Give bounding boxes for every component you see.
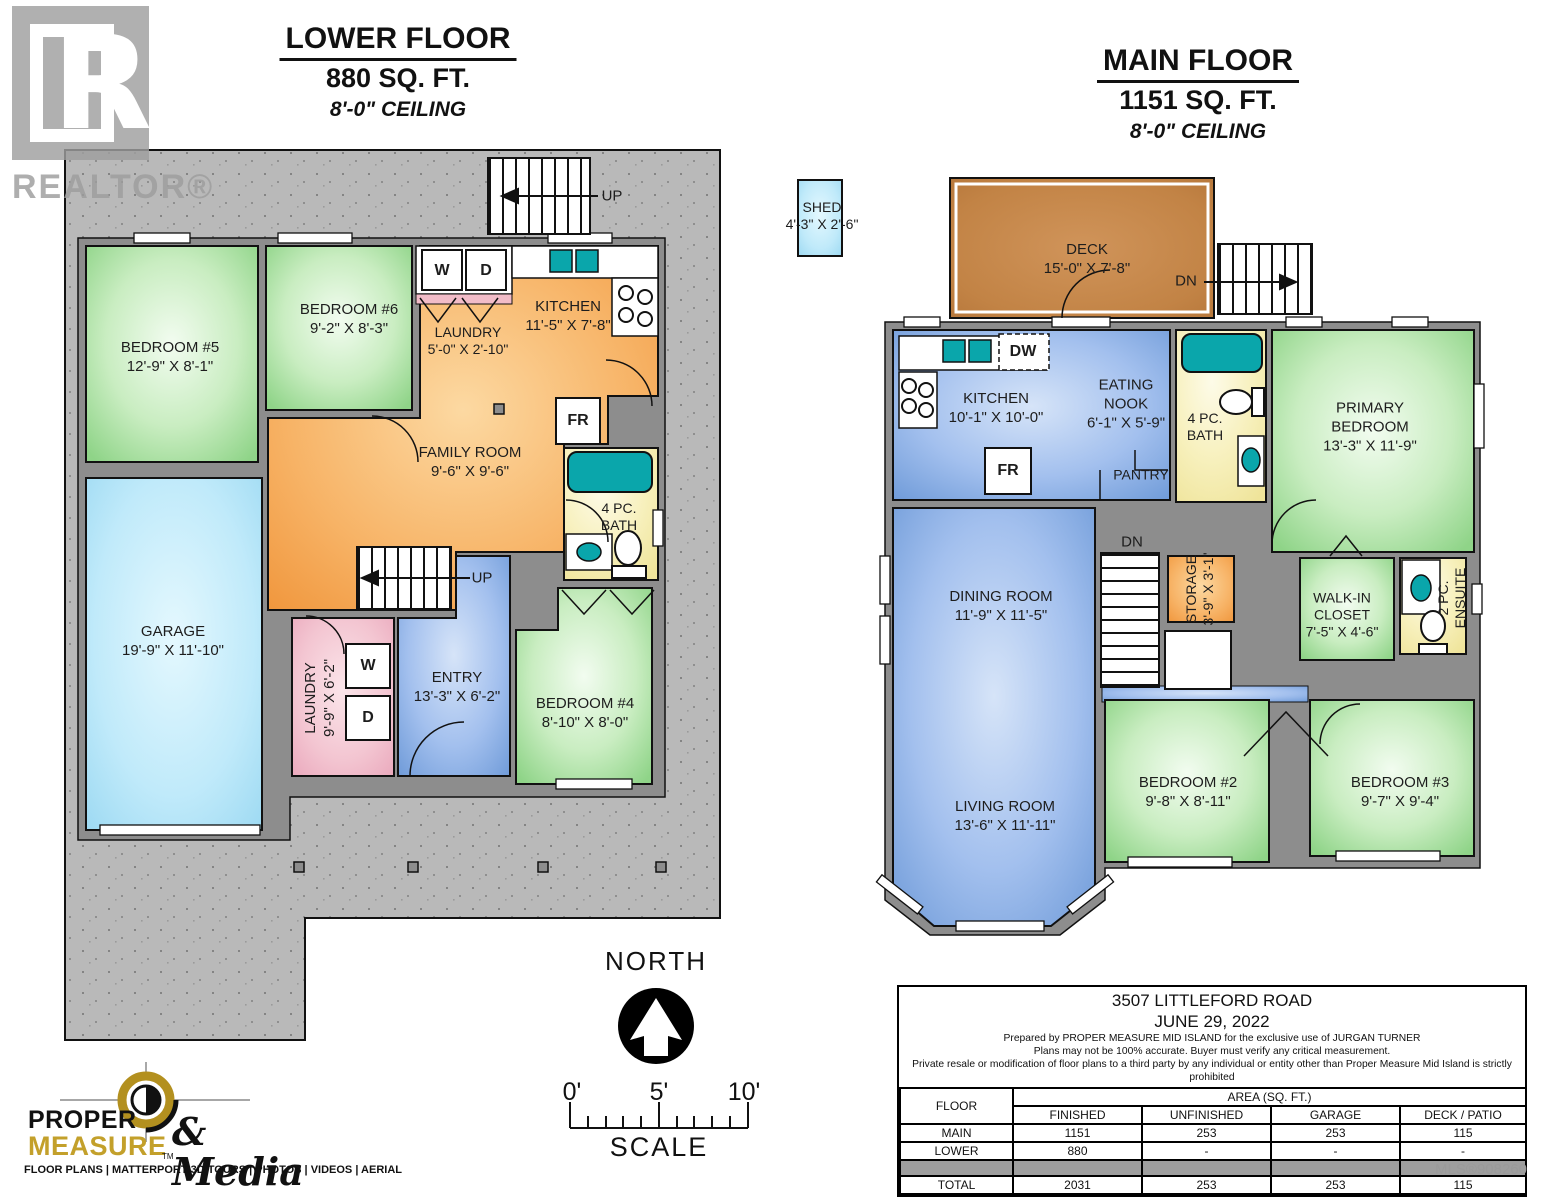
scale-label: SCALE bbox=[610, 1132, 709, 1163]
stair-landing bbox=[1164, 630, 1232, 690]
label-entry: ENTRY13'-3" X 6'-2" bbox=[414, 668, 500, 706]
toilet-lower bbox=[615, 531, 641, 565]
label-eating-nook: EATINGNOOK6'-1" X 5'-9" bbox=[1087, 376, 1165, 433]
sink-bath-main bbox=[1242, 448, 1260, 472]
sink-bath-lower bbox=[577, 543, 601, 561]
area-table: FLOOR AREA (SQ. FT.) FINISHED UNFINISHED… bbox=[899, 1087, 1527, 1195]
sink-main-1 bbox=[943, 340, 965, 362]
label-bedroom5: BEDROOM #512'-9" X 8'-1" bbox=[121, 338, 219, 376]
label-primary-bedroom: PRIMARYBEDROOM13'-3" X 11'-9" bbox=[1323, 399, 1417, 456]
tub-main bbox=[1182, 334, 1262, 372]
sink-main-2 bbox=[969, 340, 991, 362]
date: JUNE 29, 2022 bbox=[899, 1011, 1525, 1032]
sink-ensuite bbox=[1411, 575, 1431, 601]
label-washer-lower: W bbox=[360, 657, 375, 675]
label-deck: DECK15'-0" X 7'-8" bbox=[1044, 240, 1130, 278]
label-laundry-upper: LAUNDRY5'-0" X 2'-10" bbox=[428, 324, 509, 358]
floor-title: LOWER FLOOR bbox=[280, 22, 517, 61]
address: 3507 LITTLEFORD ROAD bbox=[899, 987, 1525, 1011]
table-row-total: TOTAL 2031 253 253 115 bbox=[900, 1176, 1526, 1194]
north-compass-icon bbox=[618, 988, 694, 1064]
label-shed: SHED4'-3" X 2'-6" bbox=[786, 199, 859, 233]
stairs-interior-up bbox=[356, 546, 452, 610]
col-garage: GARAGE bbox=[1271, 1106, 1400, 1124]
stairs-deck-down bbox=[1217, 243, 1313, 315]
floor-plan-page: LOWER FLOOR 880 SQ. FT. 8'-0" CEILING MA… bbox=[0, 0, 1553, 1200]
label-kitchen-main: KITCHEN10'-1" X 10'-0" bbox=[949, 389, 1044, 427]
north-label: NORTH bbox=[605, 946, 707, 977]
label-bath-lower: 4 PC.BATH bbox=[601, 500, 637, 534]
floor-ceiling: 8'-0" CEILING bbox=[280, 95, 517, 125]
lower-floor-title: LOWER FLOOR 880 SQ. FT. 8'-0" CEILING bbox=[280, 22, 517, 125]
label-garage: GARAGE19'-9" X 11'-10" bbox=[122, 622, 224, 660]
realtor-watermark: R REALTOR® bbox=[12, 6, 214, 207]
label-kitchen-lower: KITCHEN11'-5" X 7'-8" bbox=[525, 297, 610, 335]
label-bedroom2: BEDROOM #29'-8" X 8'-11" bbox=[1139, 773, 1237, 811]
logo-proper: PROPER bbox=[28, 1108, 137, 1133]
label-up-mid: UP bbox=[472, 569, 493, 588]
toilet-main bbox=[1220, 390, 1252, 414]
realtor-logo-icon: R bbox=[12, 6, 149, 160]
label-fridge-lower: FR bbox=[567, 412, 588, 430]
stairs-interior-down bbox=[1100, 552, 1160, 688]
main-floor-title: MAIN FLOOR 1151 SQ. FT. 8'-0" CEILING bbox=[1097, 44, 1299, 147]
table-row-main: MAIN 1151 253 253 115 bbox=[900, 1124, 1526, 1142]
scale-tick-0: 0' bbox=[563, 1078, 582, 1107]
label-laundry-lower: LAUNDRY9'-9" X 6'-2" bbox=[301, 659, 339, 737]
floor-area: 880 SQ. FT. bbox=[280, 61, 517, 95]
label-dryer-upper: D bbox=[480, 262, 492, 280]
tub-lower bbox=[568, 452, 652, 492]
label-dryer-lower: D bbox=[362, 709, 374, 727]
col-finished: FINISHED bbox=[1013, 1106, 1142, 1124]
logo-services: FLOOR PLANS | MATTERPORT 3D TOURS | PHOT… bbox=[24, 1164, 402, 1176]
scale-tick-10: 10' bbox=[728, 1078, 761, 1107]
label-dishwasher: DW bbox=[1010, 343, 1037, 361]
label-bedroom4: BEDROOM #48'-10" X 8'-0" bbox=[536, 694, 634, 732]
label-dn-deck: DN bbox=[1175, 272, 1197, 291]
label-washer-upper: W bbox=[434, 262, 449, 280]
label-dining-room: DINING ROOM11'-9" X 11'-5" bbox=[949, 587, 1052, 625]
label-up-top: UP bbox=[602, 187, 623, 206]
stove-lower bbox=[612, 278, 658, 336]
label-bedroom3: BEDROOM #39'-7" X 9'-4" bbox=[1351, 773, 1449, 811]
realtor-wordmark: REALTOR® bbox=[12, 168, 214, 207]
floor-title: MAIN FLOOR bbox=[1097, 44, 1299, 83]
floor-ceiling: 8'-0" CEILING bbox=[1097, 117, 1299, 147]
floor-area: 1151 SQ. FT. bbox=[1097, 83, 1299, 117]
mls-number: MLS®908260 bbox=[1390, 1161, 1527, 1178]
label-living-room: LIVING ROOM13'-6" X 11'-11" bbox=[955, 797, 1056, 835]
sink-lower-1 bbox=[550, 250, 572, 272]
label-family-room: FAMILY ROOM9'-6" X 9'-6" bbox=[419, 443, 522, 481]
label-storage: STORAGE3'-9" X 3'-1" bbox=[1183, 553, 1217, 626]
label-ensuite: 2 PC.ENSUITE bbox=[1435, 568, 1469, 629]
table-header-floor: FLOOR bbox=[900, 1088, 1013, 1124]
label-bedroom6: BEDROOM #69'-2" X 8'-3" bbox=[300, 300, 398, 338]
label-walkin-closet: WALK-INCLOSET7'-5" X 4'-6" bbox=[1306, 590, 1379, 641]
col-unfinished: UNFINISHED bbox=[1142, 1106, 1271, 1124]
logo-measure: MEASURE bbox=[28, 1133, 167, 1160]
scale-tick-5: 5' bbox=[650, 1078, 669, 1107]
prepared-line: Prepared by PROPER MEASURE MID ISLAND fo… bbox=[899, 1032, 1525, 1045]
private-line: Private resale or modification of floor … bbox=[899, 1058, 1525, 1084]
sink-lower-2 bbox=[576, 250, 598, 272]
col-deck-patio: DECK / PATIO bbox=[1400, 1106, 1526, 1124]
label-pantry: PANTRY bbox=[1113, 467, 1169, 484]
label-fridge-main: FR bbox=[997, 462, 1018, 480]
stairs-exterior-up bbox=[487, 157, 591, 235]
room-dining-living bbox=[893, 508, 1095, 926]
accuracy-line: Plans may not be 100% accurate. Buyer mu… bbox=[899, 1045, 1525, 1058]
table-row-lower: LOWER 880 - - - bbox=[900, 1142, 1526, 1160]
logo-media: & Media bbox=[172, 1112, 304, 1192]
table-header-area: AREA (SQ. FT.) bbox=[1013, 1088, 1526, 1106]
label-bath-main: 4 PC.BATH bbox=[1187, 410, 1223, 444]
label-dn-interior: DN bbox=[1121, 533, 1143, 552]
